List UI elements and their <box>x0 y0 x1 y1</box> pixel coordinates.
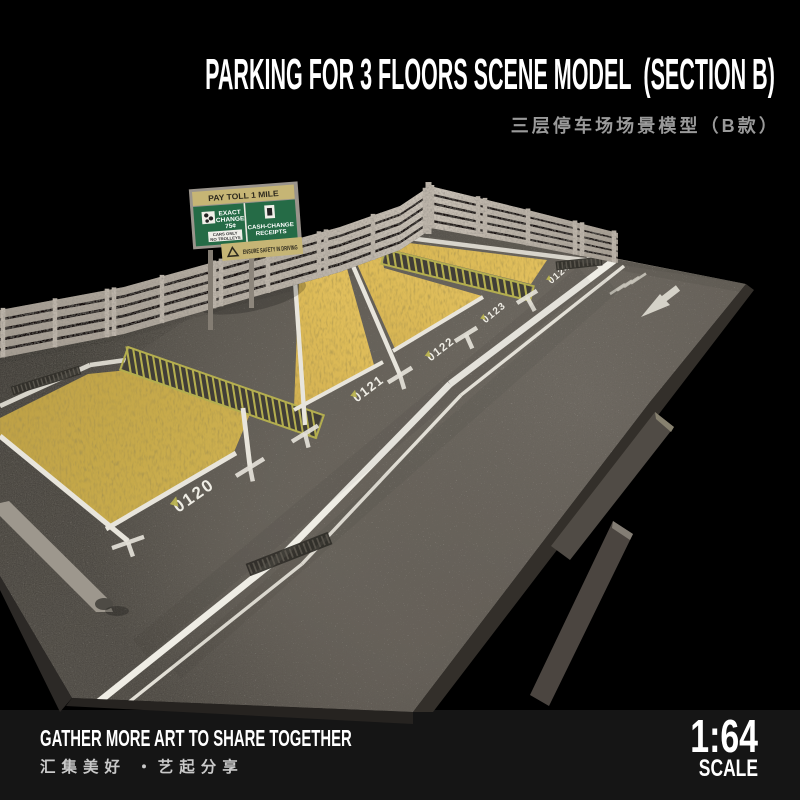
svg-text:75¢: 75¢ <box>225 223 237 231</box>
svg-text:SCALE: SCALE <box>699 754 758 782</box>
svg-text:GATHER MORE ART TO SHARE TOGET: GATHER MORE ART TO SHARE TOGETHER <box>40 726 352 751</box>
svg-text:汇集美好 ・艺起分享: 汇集美好 ・艺起分享 <box>40 757 244 776</box>
svg-text:三层停车场场景模型（B款）: 三层停车场场景模型（B款） <box>511 115 780 136</box>
svg-text:PARKING FOR 3 FLOORS SCENE MOD: PARKING FOR 3 FLOORS SCENE MODEL (SECTIO… <box>205 49 775 98</box>
